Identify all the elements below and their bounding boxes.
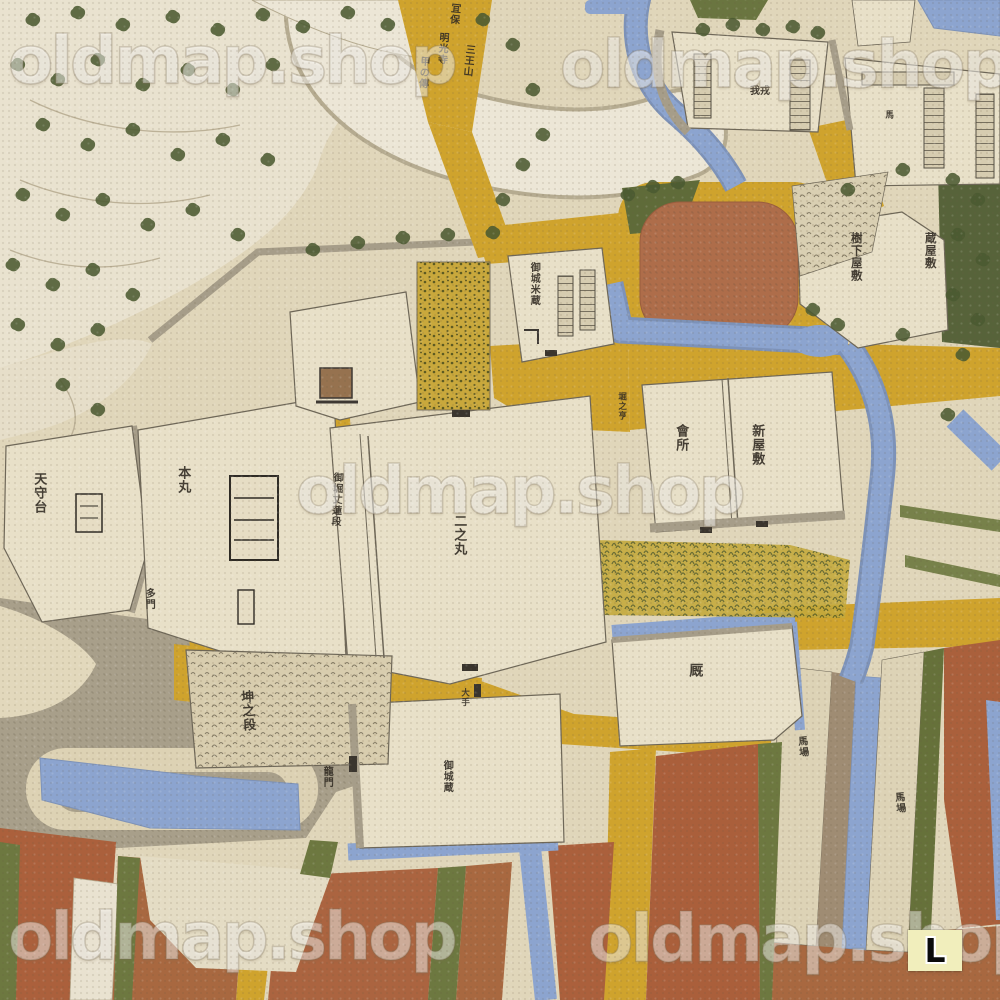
size-badge-letter: L xyxy=(924,934,945,967)
scrub-grove xyxy=(595,540,850,618)
old-map-scan: 天守台 本丸 多門 御堀丈蓮段 二之丸 御城米蔵 堀之亨 會所 新屋敷 樹下屋敷… xyxy=(0,0,1000,1000)
speckled-garden xyxy=(417,262,490,410)
size-badge[interactable]: L xyxy=(908,930,962,971)
map-artwork xyxy=(0,0,1000,1000)
rock-garden-texture xyxy=(186,650,392,768)
